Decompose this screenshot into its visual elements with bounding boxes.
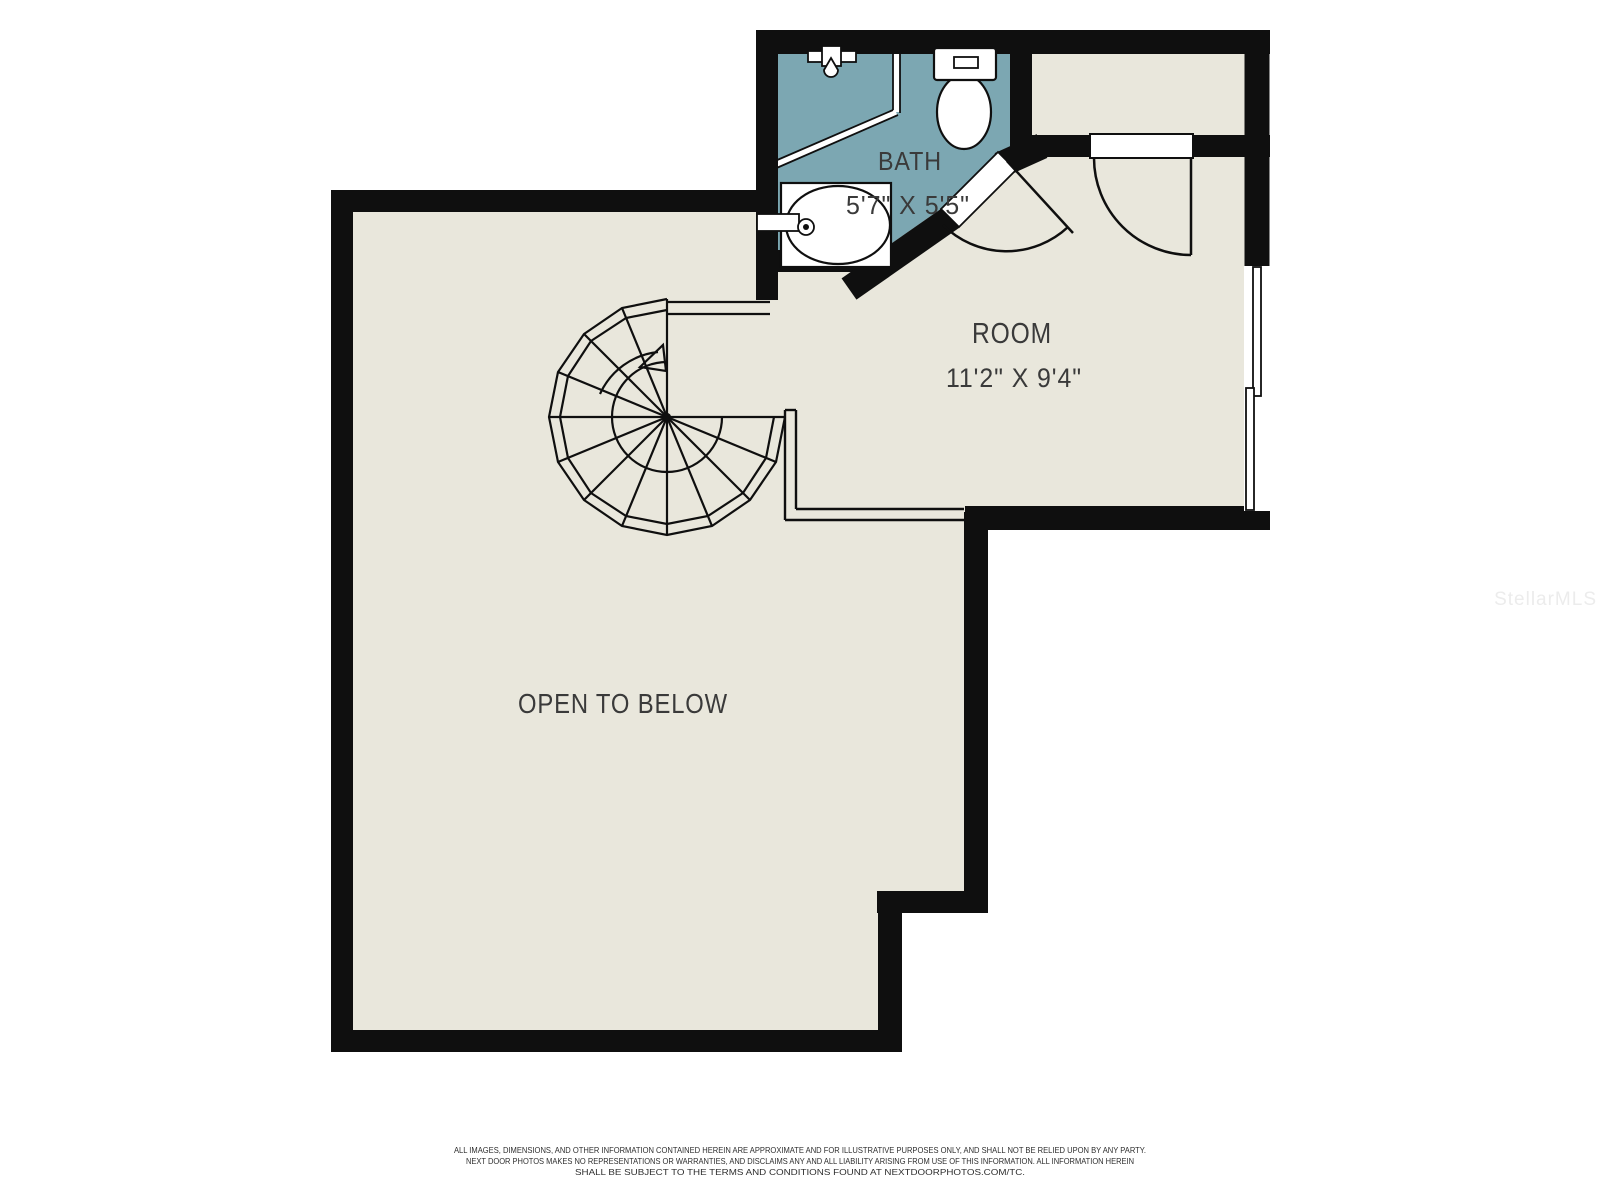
toilet-flush-button (954, 57, 978, 68)
floor-plan-page: BATH 5'7" X 5'5" ROOM 11'2" X 9'4" OPEN … (0, 0, 1600, 1200)
disclaimer: ALL IMAGES, DIMENSIONS, AND OTHER INFORM… (454, 1145, 1146, 1177)
window-sash-upper (1253, 267, 1261, 396)
floor-plan-svg: BATH 5'7" X 5'5" ROOM 11'2" X 9'4" OPEN … (0, 0, 1600, 1200)
sink-faucet (757, 214, 799, 231)
sink-drain-dot (803, 224, 809, 230)
room-label: ROOM (972, 318, 1052, 350)
disclaimer-line-2: NEXT DOOR PHOTOS MAKES NO REPRESENTATION… (466, 1156, 1134, 1166)
window-sash-lower (1246, 388, 1254, 510)
disclaimer-line-3: SHALL BE SUBJECT TO THE TERMS AND CONDIT… (575, 1167, 1025, 1177)
open-to-below-label: OPEN TO BELOW (518, 688, 728, 719)
toilet-bowl (937, 75, 991, 149)
closet-door-opening (1090, 134, 1193, 158)
disclaimer-line-1: ALL IMAGES, DIMENSIONS, AND OTHER INFORM… (454, 1145, 1146, 1155)
mls-watermark: StellarMLS (1494, 589, 1597, 610)
room-dimensions: 11'2" X 9'4" (946, 363, 1082, 393)
bath-label: BATH (878, 146, 942, 176)
bath-dimensions: 5'7" X 5'5" (846, 190, 970, 220)
stair-center-post (663, 413, 671, 421)
